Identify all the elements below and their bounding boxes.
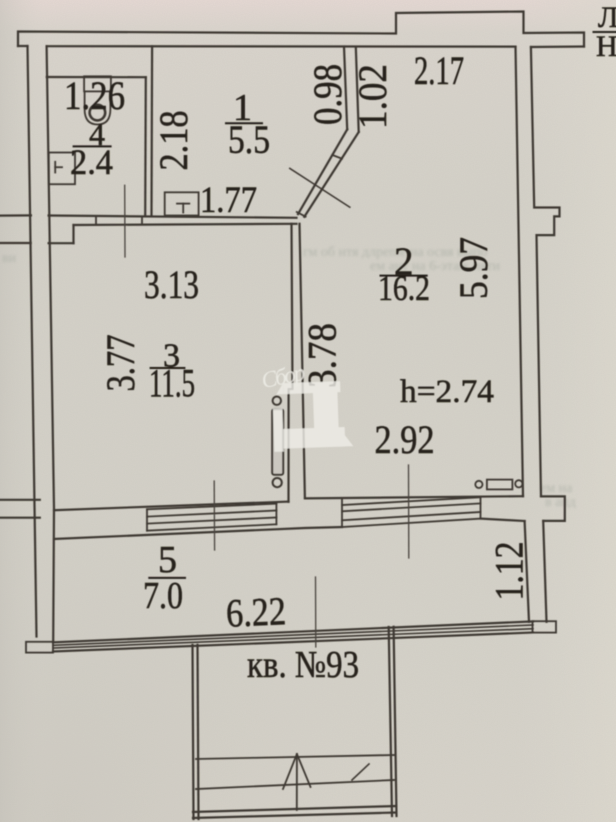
svg-text:кв. №93: кв. №93 <box>247 644 359 686</box>
svg-text:ви: ви <box>2 251 17 266</box>
svg-text:3.13: 3.13 <box>144 262 199 307</box>
svg-text:h=2.74: h=2.74 <box>400 374 494 410</box>
svg-text:7.0: 7.0 <box>143 575 183 617</box>
svg-text:2.92: 2.92 <box>375 417 435 462</box>
svg-text:2.4: 2.4 <box>70 142 113 182</box>
svg-text:ем на: ем на <box>540 481 573 496</box>
svg-text:2.17: 2.17 <box>414 48 464 93</box>
svg-text:1.02: 1.02 <box>350 64 395 129</box>
svg-text:16.2: 16.2 <box>378 268 430 308</box>
svg-text:5.97: 5.97 <box>451 237 496 299</box>
svg-text:2.18: 2.18 <box>151 111 196 171</box>
svg-text:0.98: 0.98 <box>305 64 350 125</box>
svg-text:1.12: 1.12 <box>487 542 532 601</box>
svg-text:6.22: 6.22 <box>225 588 287 636</box>
svg-text:Н: Н <box>596 30 616 63</box>
svg-text:3.78: 3.78 <box>300 323 345 388</box>
svg-text:1.77: 1.77 <box>200 180 257 221</box>
svg-text:1.26: 1.26 <box>64 73 125 118</box>
svg-text:3.77: 3.77 <box>98 335 143 392</box>
